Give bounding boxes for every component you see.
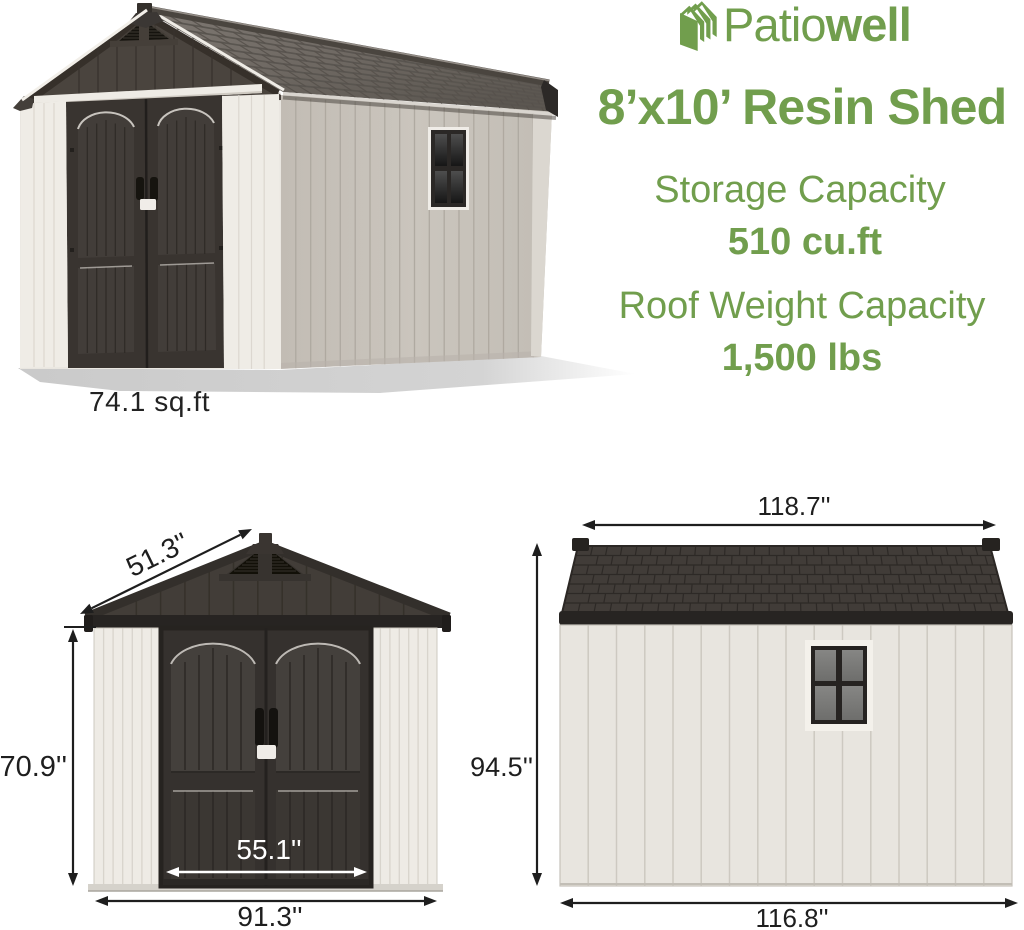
svg-text:Patiowell: Patiowell: [723, 0, 911, 51]
svg-text:70.9'': 70.9'': [0, 751, 67, 783]
svg-text:Roof Weight Capacity: Roof Weight Capacity: [619, 285, 986, 327]
svg-text:74.1 sq.ft: 74.1 sq.ft: [89, 386, 210, 417]
svg-text:91.3'': 91.3'': [237, 901, 302, 930]
svg-text:55.1'': 55.1'': [236, 834, 301, 865]
svg-text:118.7'': 118.7'': [757, 491, 830, 521]
svg-text:Storage Capacity: Storage Capacity: [654, 169, 946, 211]
svg-text:510 cu.ft: 510 cu.ft: [728, 221, 883, 263]
svg-text:8’x10’ Resin Shed: 8’x10’ Resin Shed: [598, 79, 1007, 135]
svg-text:1,500 lbs: 1,500 lbs: [722, 337, 883, 379]
svg-text:94.5'': 94.5'': [470, 752, 533, 782]
svg-text:116.8'': 116.8'': [755, 903, 828, 930]
